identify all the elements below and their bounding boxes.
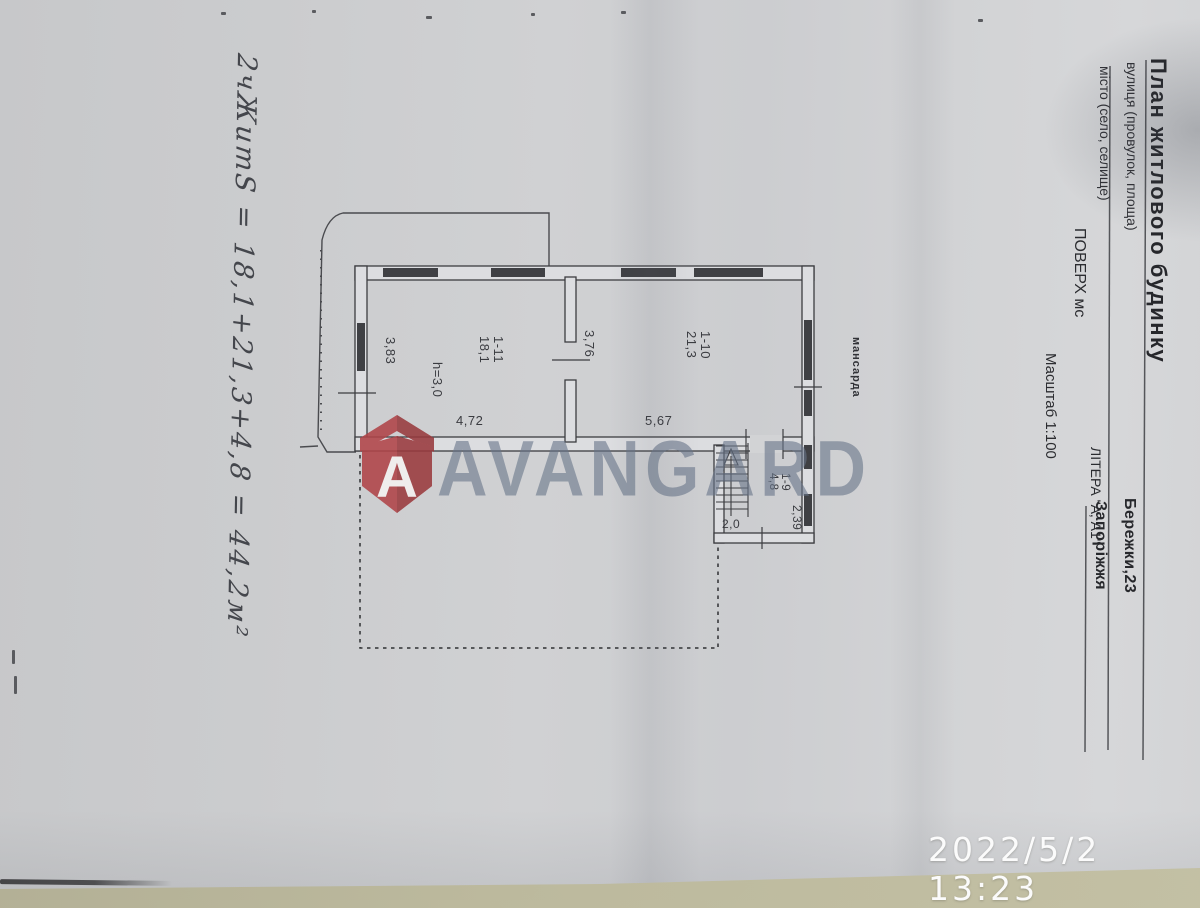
room-1-11-area: 18,1 (478, 336, 492, 363)
document-title: План житлового будинку (1147, 58, 1170, 363)
room-height-note: h=3,0 (430, 362, 444, 397)
paper-speck (978, 19, 983, 22)
paper-speck (312, 10, 316, 13)
paper-mark (12, 650, 15, 664)
scale-field: Масштаб 1:100 (1042, 353, 1058, 459)
avangard-logo-icon: A (352, 410, 442, 516)
room-1-11-label: 1-11 18,1 (478, 336, 505, 363)
room-1-10-label: 1-10 21,3 (685, 331, 712, 359)
litera-field: ЛІТЕРА "А, А1" (1088, 447, 1103, 544)
city-field-label: місто (село, селище) (1097, 66, 1112, 201)
paper-speck (531, 13, 535, 16)
photo-of-document: План житлового будинку вулиця (провулок,… (0, 0, 1200, 900)
room-1-11-id: 1-11 (491, 336, 505, 363)
room-1-10-id: 1-10 (698, 331, 712, 359)
street-field-label: вулиця (провулок, площа) (1124, 62, 1139, 231)
floor-field: ПОВЕРХ мс (1070, 228, 1087, 317)
camera-timestamp: 2022/5/2 13:23 (928, 830, 1200, 908)
paper-mark (14, 676, 17, 694)
dim-stair-bottom: 2,0 (722, 517, 740, 531)
mansard-label: мансарда (849, 337, 861, 398)
paper-speck (221, 12, 226, 15)
logo-letter: A (376, 445, 418, 510)
paper-speck (426, 16, 432, 19)
street-field-value: Бережки,23 (1120, 498, 1137, 593)
paper-speck (621, 11, 626, 14)
dim-room1-left: 3,83 (383, 337, 397, 364)
dim-wall-between: 3,76 (582, 330, 596, 357)
room-1-10-area: 21,3 (685, 331, 699, 359)
avangard-watermark-text: AVANGARD (437, 424, 871, 514)
